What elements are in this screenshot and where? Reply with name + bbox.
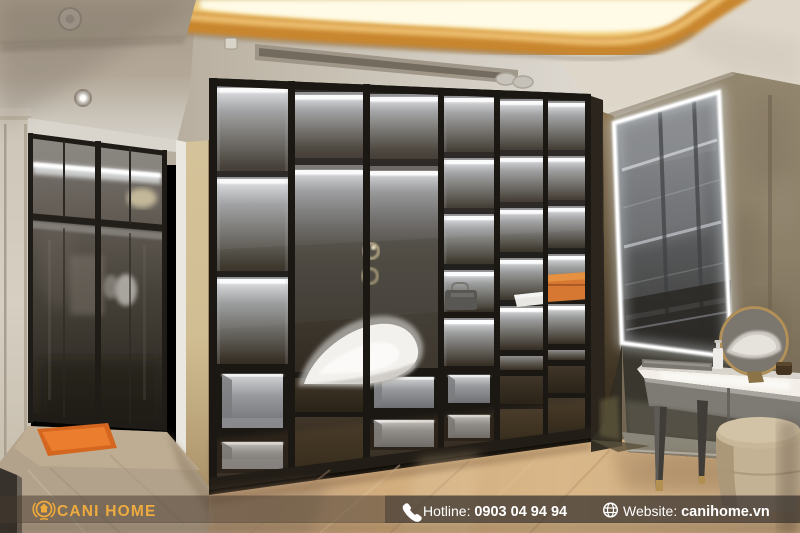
svg-text:CANI HOME: CANI HOME [57,503,157,520]
svg-text:Website: canihome.vn: Website: canihome.vn [623,503,770,520]
svg-text:Hotline: 0903 04 94 94: Hotline: 0903 04 94 94 [423,503,567,520]
